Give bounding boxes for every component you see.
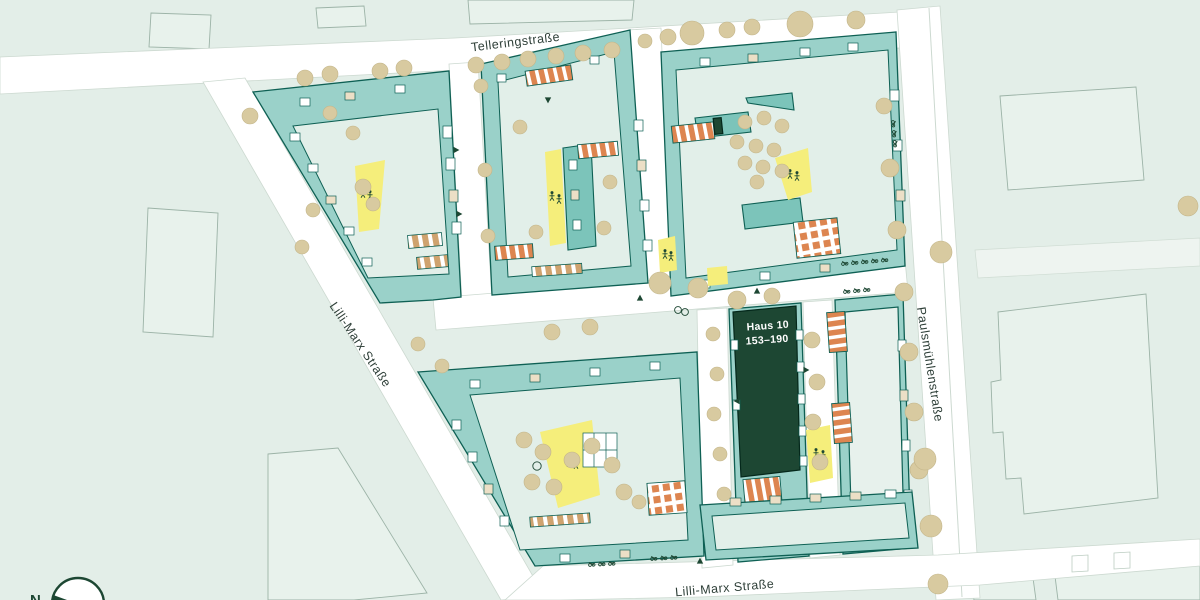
special-building-orange xyxy=(827,311,848,352)
north-compass: N xyxy=(30,578,104,600)
context-building-footprint xyxy=(149,13,211,49)
special-building-tan xyxy=(417,255,449,270)
special-building-grid xyxy=(647,481,687,516)
block-bottom-row xyxy=(700,490,918,560)
special-building-grid xyxy=(793,218,841,258)
parking-bay xyxy=(1114,552,1130,569)
context-building-footprint xyxy=(1000,87,1144,190)
block-top-middle xyxy=(481,30,652,295)
special-building-dark xyxy=(713,118,723,135)
compass-label: N xyxy=(30,592,41,600)
site-plan-map: Haus 10 153–190 xyxy=(0,0,1200,600)
playground-area xyxy=(658,236,677,273)
special-building-orange xyxy=(577,141,618,158)
playground-area xyxy=(707,266,728,286)
context-building-footprint xyxy=(143,208,218,337)
context-building-footprint xyxy=(268,448,427,600)
special-building-orange xyxy=(495,244,534,261)
context-building-footprint xyxy=(316,6,366,28)
compass-circle xyxy=(52,578,104,600)
parking-bay xyxy=(1072,555,1088,572)
site-plan-svg: Haus 10 153–190 xyxy=(0,0,1200,600)
special-building-tan xyxy=(408,233,443,249)
context-building-footprint xyxy=(468,0,634,24)
special-building-orange xyxy=(832,402,853,443)
inner-wing xyxy=(563,144,596,250)
context-driveway xyxy=(975,238,1200,278)
context-building-footprint xyxy=(991,294,1158,514)
